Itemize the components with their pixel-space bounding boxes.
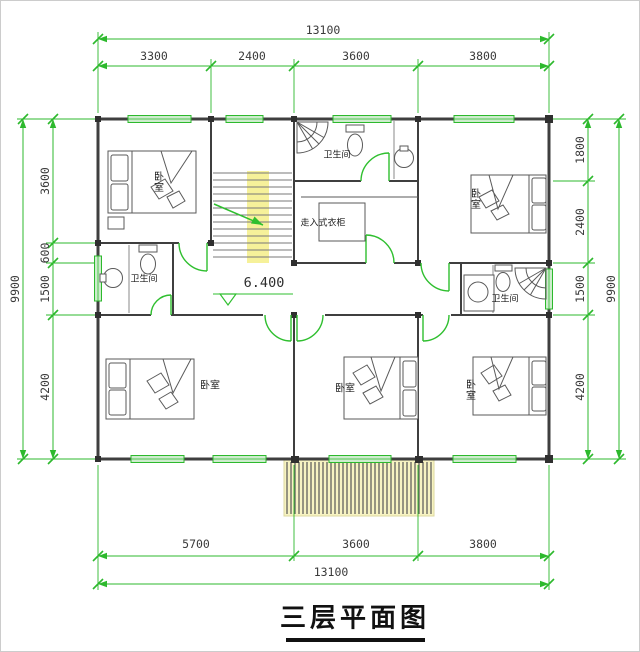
room-label-bedroom-bottom-right: 卧室: [462, 379, 477, 401]
dim-bottom-segment-0: 5700: [182, 537, 210, 551]
floor-plan-page: 卧室 卫生间 走入式衣柜 卧室 卫生间 卫生间 卧室 卧室 卧室 6.400 1…: [0, 0, 640, 652]
balcony: [284, 459, 434, 516]
dim-top-total: 13100: [306, 23, 341, 37]
dim-top-segment-0: 3300: [140, 49, 168, 63]
floor-plan-drawing: [1, 1, 640, 652]
room-label-bedroom-top-left: 卧室: [150, 171, 165, 193]
bed-bottom-middle-icon: [344, 357, 418, 419]
bed-bottom-right-icon: [473, 357, 546, 415]
sink-left-bathroom-icon: [100, 269, 123, 288]
door-bathroom-top: [361, 153, 389, 181]
dim-bottom-segment-2: 3800: [469, 537, 497, 551]
dim-right-segment-0: 1800: [573, 136, 587, 164]
dim-top-segment-3: 3800: [469, 49, 497, 63]
stair-highlight: [247, 171, 269, 263]
door-bedroom-top-right: [421, 263, 449, 291]
dim-left-total: 9900: [8, 275, 22, 303]
dim-top-segment-1: 2400: [238, 49, 266, 63]
shower-right-bathroom-icon: [515, 268, 546, 299]
dim-top-segment-2: 3600: [342, 49, 370, 63]
corridor-elevation-value: 6.400: [244, 275, 285, 291]
room-label-bedroom-bottom-left: 卧室: [200, 377, 220, 392]
door-walk-in-closet: [366, 235, 394, 263]
elevation-marker-icon: [213, 294, 293, 305]
sink-right-bathroom-icon: [464, 275, 494, 311]
bed-top-right-icon: [471, 175, 546, 233]
title-underline: [286, 638, 425, 642]
room-label-bedroom-top-right: 卧室: [467, 188, 482, 210]
bed-bottom-left-icon: [106, 359, 194, 419]
staircase: [213, 171, 292, 263]
toilet-right-bathroom-icon: [495, 265, 512, 292]
room-label-walk-in-closet: 走入式衣柜: [300, 216, 345, 229]
dim-left-segment-3: 4200: [38, 373, 52, 401]
sink-top-bathroom-icon: [395, 146, 414, 168]
drawing-title: 三层平面图: [280, 598, 430, 635]
dim-right-segment-1: 2400: [573, 208, 587, 236]
room-label-bathroom-right: 卫生间: [491, 292, 518, 305]
door-bedroom-bottom-left: [265, 315, 291, 341]
room-label-bathroom-top: 卫生间: [323, 148, 350, 161]
door-bathroom-left: [151, 295, 171, 315]
dim-bottom-segment-1: 3600: [342, 537, 370, 551]
room-label-bedroom-bottom-middle: 卧室: [335, 380, 355, 395]
dim-left-segment-2: 1500: [38, 275, 52, 303]
dim-left-segment-0: 3600: [38, 167, 52, 195]
room-label-bathroom-left: 卫生间: [130, 272, 157, 285]
toilet-left-bathroom-icon: [139, 245, 157, 274]
door-bedroom-top-left: [179, 243, 207, 271]
dim-right-total: 9900: [604, 275, 618, 303]
dim-left-segment-1: 600: [38, 243, 52, 264]
fixtures: [100, 122, 546, 419]
dim-right-segment-2: 1500: [573, 275, 587, 303]
door-bedroom-bottom-middle: [297, 315, 323, 341]
dim-bottom-total: 13100: [314, 565, 349, 579]
dim-right-segment-3: 4200: [573, 373, 587, 401]
door-bedroom-bottom-right: [423, 315, 449, 341]
